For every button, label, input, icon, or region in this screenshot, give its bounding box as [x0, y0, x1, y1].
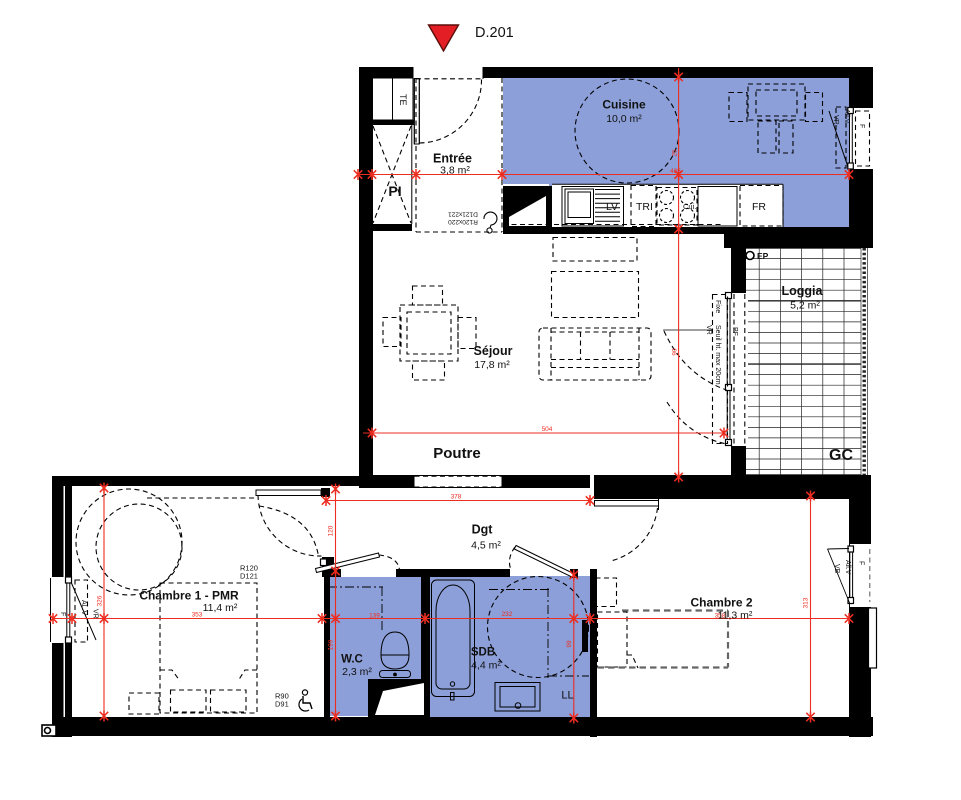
svg-text:F: F — [858, 124, 865, 128]
svg-text:VR: VR — [92, 609, 99, 619]
svg-text:120: 120 — [328, 525, 335, 536]
svg-text:139: 139 — [369, 613, 380, 620]
svg-text:PF: PF — [731, 327, 738, 336]
svg-text:F: F — [59, 612, 66, 616]
svg-text:Cui.: Cui. — [683, 202, 696, 211]
svg-text:Cuisine: Cuisine — [602, 98, 646, 112]
svg-text:199: 199 — [328, 639, 335, 650]
svg-text:VB: VB — [833, 564, 840, 574]
svg-text:PI: PI — [388, 183, 401, 199]
svg-text:10,0 m²: 10,0 m² — [606, 113, 642, 125]
svg-text:353: 353 — [192, 612, 203, 619]
svg-text:90: 90 — [672, 348, 679, 356]
svg-text:3,8 m²: 3,8 m² — [440, 165, 470, 177]
svg-text:11,3 m²: 11,3 m² — [718, 610, 753, 622]
svg-text:All.V: All.V — [844, 560, 851, 575]
svg-text:Chambre 1 - PMR: Chambre 1 - PMR — [139, 589, 239, 603]
svg-text:Chambre 2: Chambre 2 — [690, 596, 752, 610]
svg-text:TRI: TRI — [636, 201, 653, 213]
svg-text:11,4 m²: 11,4 m² — [203, 602, 238, 614]
svg-text:EP: EP — [757, 251, 769, 261]
svg-text:SDB: SDB — [471, 647, 495, 659]
svg-text:435: 435 — [670, 168, 681, 175]
svg-text:232: 232 — [502, 611, 513, 618]
svg-text:VR: VR — [832, 115, 839, 125]
svg-text:TE: TE — [398, 94, 408, 106]
svg-text:504: 504 — [542, 426, 553, 433]
svg-text:LL: LL — [561, 690, 573, 702]
svg-text:Poutre: Poutre — [433, 445, 481, 462]
svg-text:R120x220: R120x220 — [448, 218, 478, 225]
svg-text:All.V: All.V — [843, 109, 850, 124]
svg-text:Séjour: Séjour — [474, 344, 513, 358]
svg-text:Seuil ht. max 20cm: Seuil ht. max 20cm — [714, 325, 721, 385]
svg-text:F: F — [858, 561, 865, 565]
svg-text:326: 326 — [97, 595, 104, 606]
svg-text:LV: LV — [606, 201, 618, 213]
svg-text:GC: GC — [829, 447, 853, 464]
svg-text:4,4 m²: 4,4 m² — [471, 660, 501, 672]
svg-text:Entrée: Entrée — [433, 152, 472, 166]
svg-text:17,8 m²: 17,8 m² — [474, 359, 510, 371]
svg-text:25: 25 — [672, 149, 679, 157]
svg-text:AL.V: AL.V — [80, 600, 87, 616]
svg-text:2,3 m²: 2,3 m² — [342, 666, 372, 678]
svg-text:Loggia: Loggia — [782, 284, 824, 298]
svg-text:Dgt: Dgt — [472, 523, 494, 537]
svg-text:D121x221: D121x221 — [448, 211, 478, 218]
svg-text:5,2 m²: 5,2 m² — [790, 300, 820, 312]
svg-text:W.C: W.C — [341, 654, 363, 666]
svg-text:99: 99 — [566, 640, 573, 648]
svg-text:Fixe: Fixe — [714, 300, 721, 313]
svg-text:D121: D121 — [240, 572, 258, 581]
svg-text:D91: D91 — [275, 700, 289, 709]
svg-text:D.201: D.201 — [475, 25, 514, 41]
svg-text:313: 313 — [803, 597, 810, 608]
svg-text:378: 378 — [451, 494, 462, 501]
svg-text:FR: FR — [752, 201, 766, 213]
svg-text:4,5 m²: 4,5 m² — [471, 540, 501, 552]
svg-text:VR: VR — [705, 325, 712, 335]
